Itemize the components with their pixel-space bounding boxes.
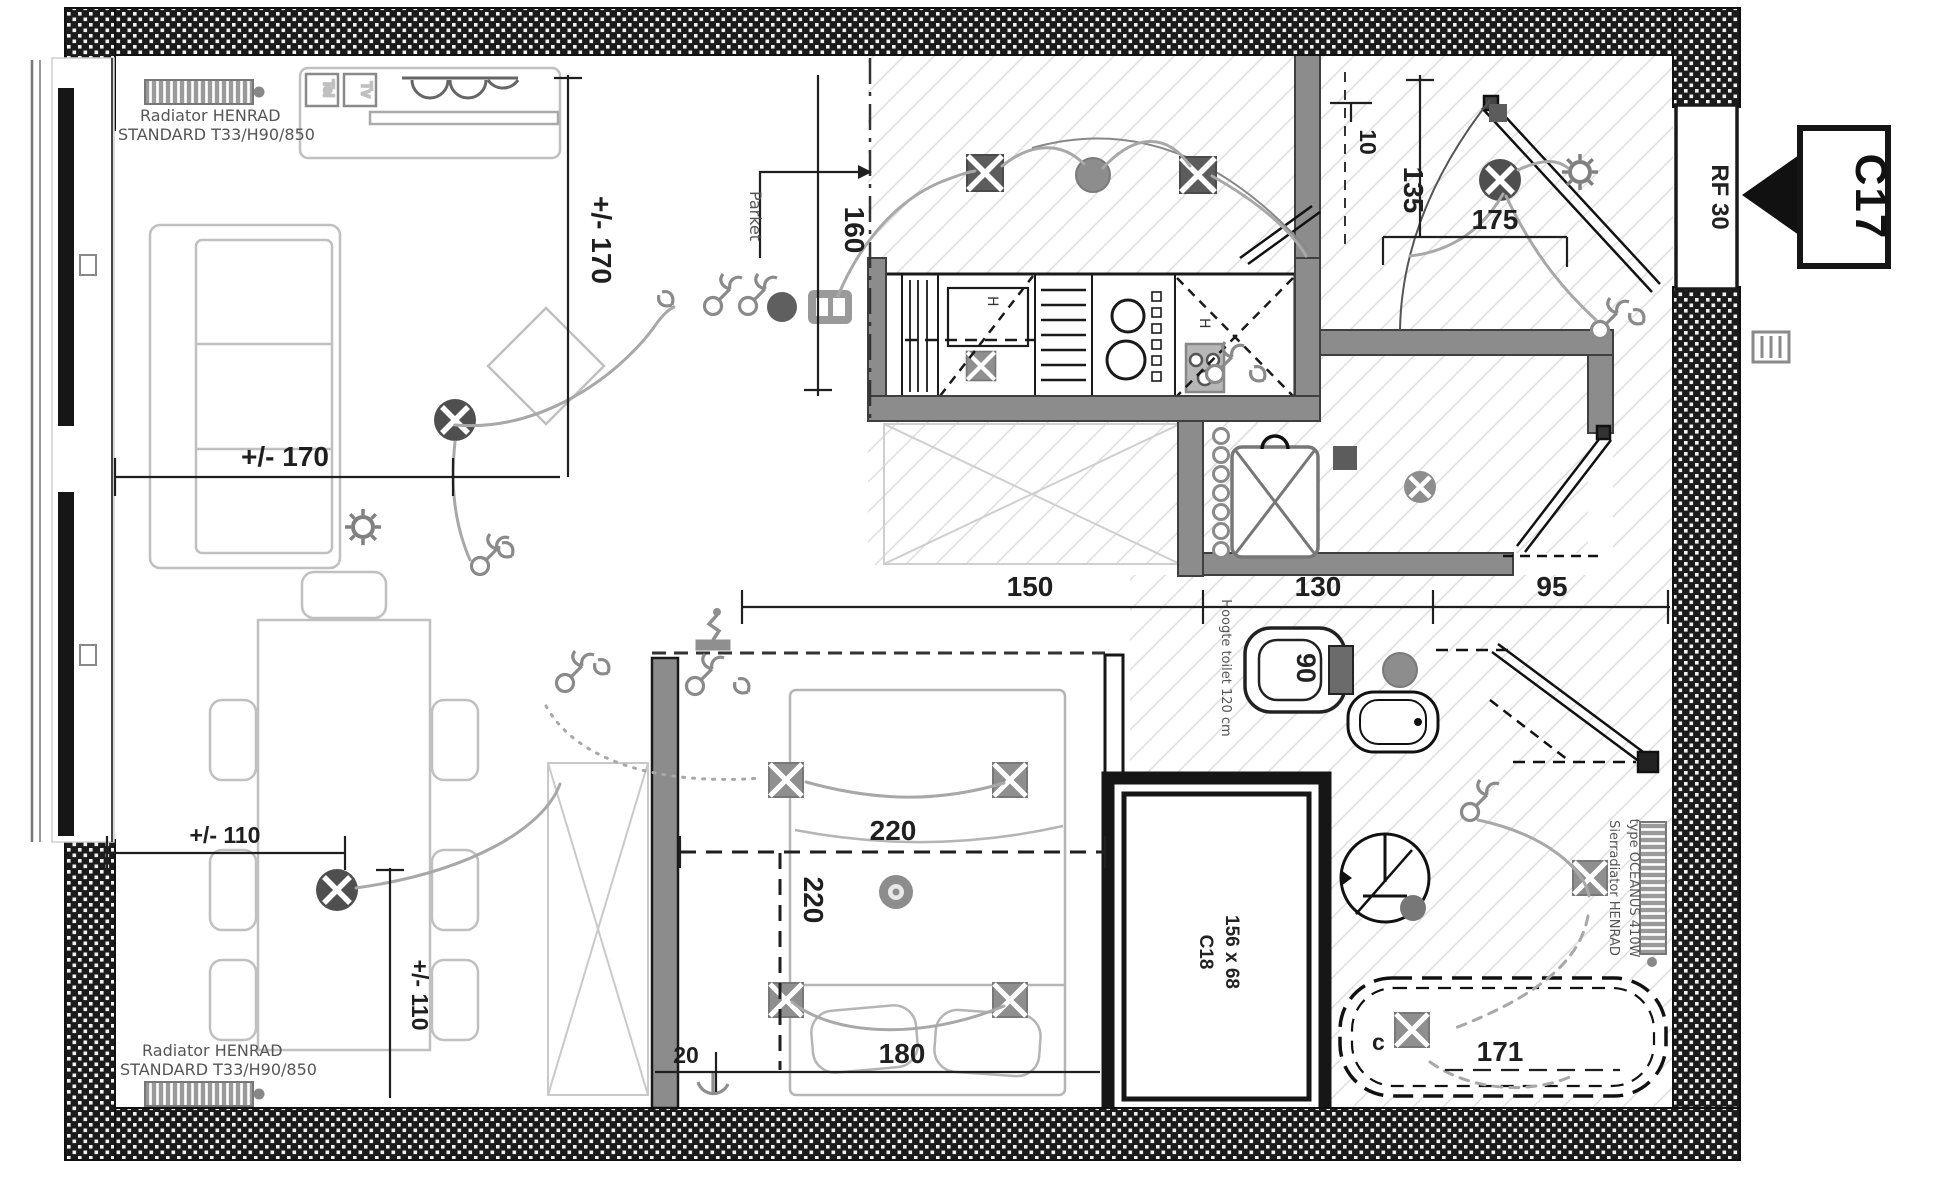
dim-table-height: +/- 110 (407, 960, 433, 1031)
dim-door-offset: 10 (1355, 129, 1381, 155)
window-handle-1 (80, 255, 96, 275)
window-frame-2 (58, 492, 74, 836)
toilet: 90 (1245, 628, 1353, 712)
floor-plan-page: Tel Tv (0, 0, 1942, 1200)
switch-prong-icon (499, 543, 513, 557)
dim-bath-length: 171 (1477, 1036, 1524, 1067)
dimmer-icon (767, 292, 797, 322)
wardrobe (548, 763, 648, 1095)
dim-bed-side: 180 (879, 1038, 926, 1069)
shaft-label: C18 (1195, 935, 1216, 970)
window-frame-1 (58, 88, 74, 426)
tub-circuit-label: c (1372, 1029, 1385, 1055)
ceiling-light-icon (1383, 653, 1417, 687)
switch-icon (557, 651, 595, 692)
socket-icon (993, 763, 1027, 797)
bedroom (548, 653, 1105, 1095)
dim-table-width: +/- 110 (190, 822, 261, 848)
dim-corridor: 95 (1536, 571, 1567, 602)
ceiling-light-icon (434, 399, 476, 441)
pull-switch-icon (698, 1072, 728, 1094)
dim-hall-depth: 135 (1398, 167, 1429, 214)
switch-prong-icon (735, 679, 749, 693)
unit-mark-h2: H (1196, 318, 1212, 329)
sofa (150, 225, 340, 568)
socket-icon (769, 763, 803, 797)
window-handle-2 (80, 645, 96, 665)
dim-toilet-run: 130 (1295, 571, 1342, 602)
ceiling-light-icon (1404, 471, 1436, 503)
bedroom-shaft-wall (1105, 655, 1123, 780)
unit-tag: C17 (1742, 128, 1895, 266)
shaft-size-label: 156 x 68 (1221, 915, 1242, 989)
dim-living-height: +/- 170 (586, 196, 617, 284)
dim-bed-gap: 20 (673, 1042, 699, 1068)
switch-icon (705, 274, 743, 315)
wall-light-icon (345, 509, 381, 545)
unit-tag-arrow (1742, 150, 1806, 240)
dining-table (210, 572, 478, 1050)
socket-icon (1573, 861, 1607, 895)
junction-box-icon (1180, 157, 1216, 193)
ceiling-light-icon (879, 875, 913, 909)
towel-radiator (1214, 429, 1229, 558)
sierradiator-line1: Sierradiator HENRAD (1606, 820, 1621, 956)
switch-prong-icon (659, 292, 673, 306)
side-table (488, 308, 604, 424)
wc-width-label: 90 (1291, 653, 1321, 683)
dim-kitchen-left: 160 (839, 207, 870, 254)
socket-icon (769, 983, 803, 1017)
radiator-top: Radiator HENRAD STANDARD T33/H90/850 (118, 80, 315, 144)
dim-living-width: +/- 170 (241, 441, 329, 472)
shaft-c18: C18 156 x 68 (1108, 778, 1325, 1115)
kitchen-counter: H H (884, 274, 1295, 398)
floor-note-label: Parket (746, 191, 765, 241)
washbasin (1348, 692, 1438, 752)
radiator-top-line1: Radiator HENRAD (140, 106, 281, 125)
toilet-height-note: Hoogte toilet 120 cm (1218, 599, 1233, 736)
bed (790, 690, 1065, 1095)
dim-bed-length: 220 (798, 877, 829, 924)
switch-icon (472, 534, 510, 575)
tel-outlet-label: Tel (320, 79, 335, 97)
dim-hall-width: 175 (1472, 204, 1519, 235)
radiator-bottom-line2: STANDARD T33/H90/850 (120, 1060, 317, 1079)
ventilation-icon (1753, 332, 1789, 362)
door-rating-label: RF 30 (1706, 164, 1733, 229)
unit-mark-h1: H (984, 296, 1000, 307)
socket-icon (993, 983, 1027, 1017)
floor-plan-drawing: Tel Tv (0, 0, 1942, 1200)
living-room: Tel Tv (150, 68, 604, 1050)
dim-bed-width: 220 (870, 815, 917, 846)
sierradiator-line2: type OCEANUS 410W (1626, 819, 1641, 958)
wall-control-icon (696, 609, 730, 651)
wall-socket-icon (1489, 104, 1507, 122)
radiator-bottom-line1: Radiator HENRAD (142, 1041, 283, 1060)
entrance-frame: RF 30 (1676, 105, 1737, 289)
ceiling-light-icon (316, 869, 358, 911)
switch-icon (687, 654, 725, 695)
washing-machine (1341, 834, 1429, 922)
sierradiator: Sierradiator HENRAD type OCEANUS 410W (1606, 819, 1666, 967)
shower (1232, 436, 1318, 557)
switch-prong-icon (595, 660, 609, 674)
dim-kitchen-run: 150 (1007, 571, 1054, 602)
wall-socket-icon (1333, 446, 1357, 470)
window-band (32, 58, 114, 842)
ceiling-light-icon (1479, 159, 1521, 201)
outlet-block-icon (808, 290, 852, 324)
radiator-top-line2: STANDARD T33/H90/850 (118, 125, 315, 144)
tv-outlet-label: Tv (358, 81, 373, 98)
socket-icon (1395, 1013, 1429, 1047)
unit-label: C17 (1846, 154, 1895, 241)
